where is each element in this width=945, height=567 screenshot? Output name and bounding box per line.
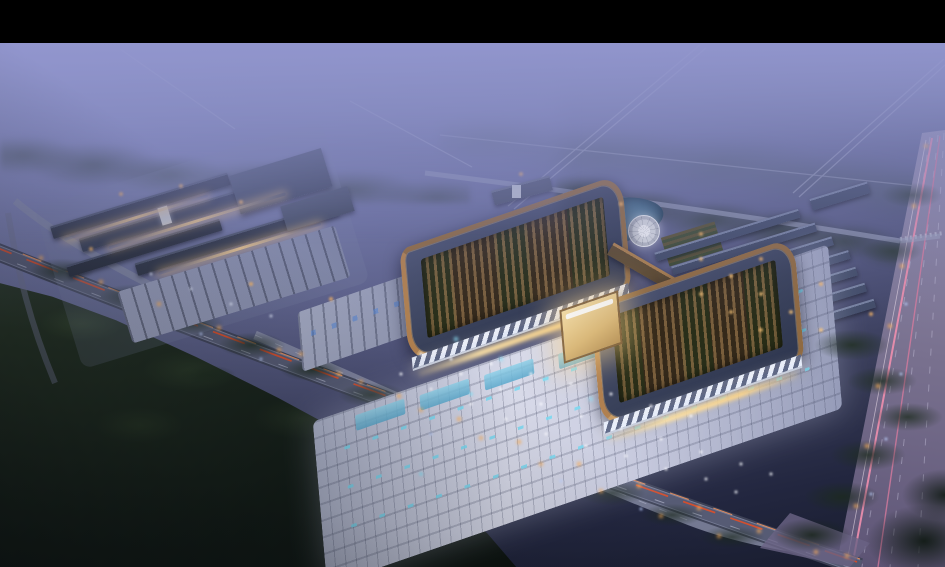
mist-patch: [0, 83, 560, 223]
fountain-jet-lights: [0, 43, 2, 45]
letterbox-top-bar: [0, 0, 945, 43]
aerial-scene: [0, 43, 945, 567]
rendering-frame: [0, 0, 945, 567]
